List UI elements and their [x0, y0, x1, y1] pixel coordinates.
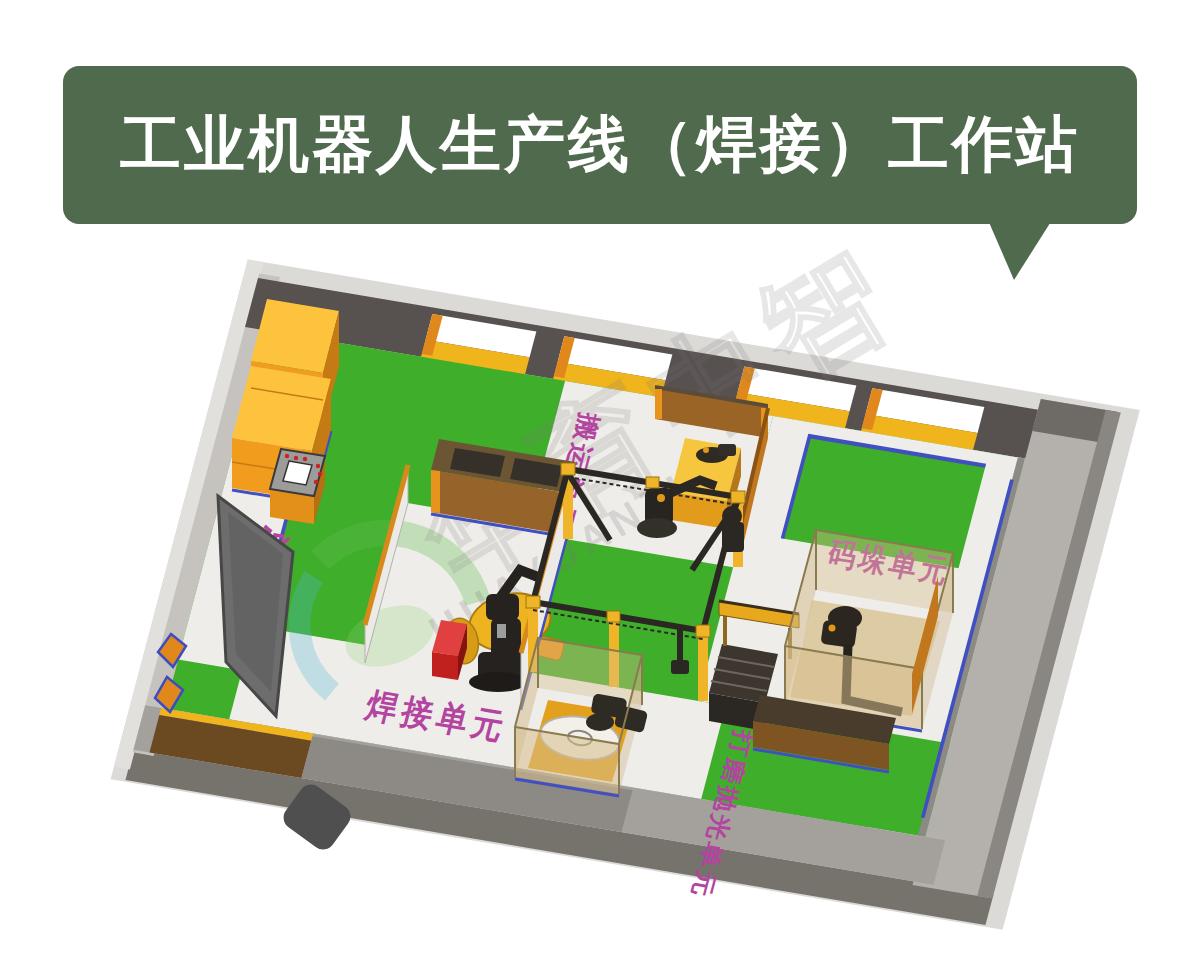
control-console — [270, 449, 325, 524]
banner-pointer-icon — [988, 220, 1052, 280]
palletizing-enclosure — [785, 530, 953, 731]
floor-plan-illustration: 华育中智 HUAYUANZHI 总控台 焊接单元 搬运单元 码垛单元 打磨抛光单… — [0, 0, 1200, 959]
page: 工业机器人生产线（焊接）工作站 — [0, 0, 1200, 959]
